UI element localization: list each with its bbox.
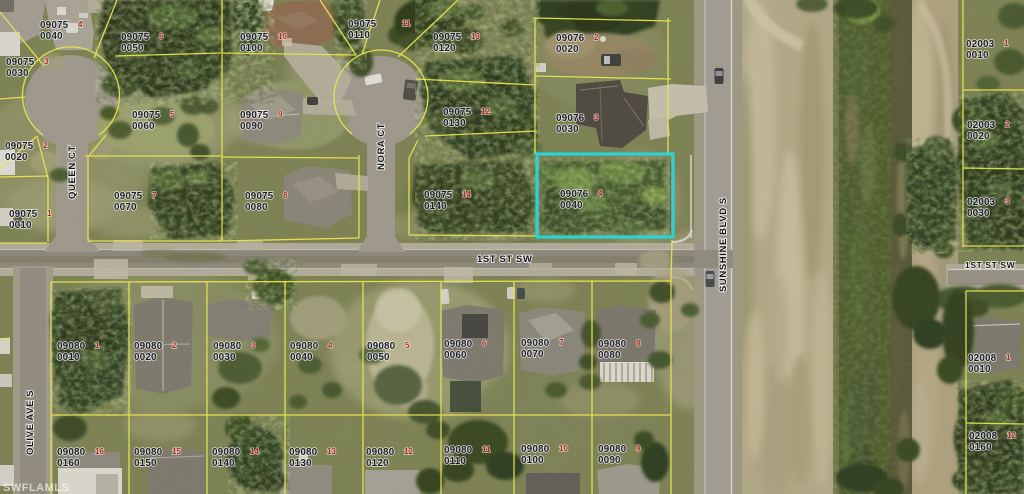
svg-text:02003: 02003	[967, 197, 996, 208]
svg-text:0100: 0100	[521, 455, 544, 466]
svg-text:0120: 0120	[366, 458, 389, 469]
svg-text:1: 1	[1006, 353, 1011, 362]
svg-text:1: 1	[1004, 39, 1009, 48]
svg-text:0140: 0140	[212, 458, 235, 469]
svg-text:09075: 09075	[40, 20, 69, 31]
svg-text:0140: 0140	[424, 201, 447, 212]
svg-text:10: 10	[559, 444, 568, 453]
svg-text:0050: 0050	[121, 43, 144, 54]
svg-text:09075: 09075	[240, 110, 269, 121]
svg-text:09080: 09080	[521, 444, 550, 455]
svg-text:0040: 0040	[560, 200, 583, 211]
svg-text:09080: 09080	[213, 341, 242, 352]
svg-text:8: 8	[283, 191, 288, 200]
svg-text:09075: 09075	[433, 32, 462, 43]
svg-text:09080: 09080	[598, 444, 627, 455]
svg-text:9: 9	[278, 110, 283, 119]
svg-text:12: 12	[404, 447, 413, 456]
svg-text:09075: 09075	[443, 107, 472, 118]
svg-text:09080: 09080	[212, 447, 241, 458]
svg-text:0030: 0030	[967, 208, 990, 219]
svg-text:0070: 0070	[114, 202, 137, 213]
svg-text:09075: 09075	[424, 190, 453, 201]
svg-text:12: 12	[481, 107, 490, 116]
svg-text:1: 1	[95, 341, 100, 350]
svg-text:11: 11	[402, 19, 411, 28]
svg-text:10: 10	[278, 32, 287, 41]
svg-text:3: 3	[44, 57, 49, 66]
svg-text:1ST ST SW: 1ST ST SW	[965, 260, 1016, 270]
svg-text:16: 16	[95, 447, 104, 456]
svg-text:02003: 02003	[966, 39, 995, 50]
svg-text:09075: 09075	[240, 32, 269, 43]
svg-text:5: 5	[405, 341, 410, 350]
svg-text:0060: 0060	[444, 350, 467, 361]
svg-text:09080: 09080	[367, 341, 396, 352]
svg-text:09075: 09075	[348, 19, 377, 30]
svg-text:0130: 0130	[289, 458, 312, 469]
svg-text:0020: 0020	[134, 352, 157, 363]
svg-text:09080: 09080	[366, 447, 395, 458]
svg-text:09080: 09080	[134, 447, 163, 458]
svg-text:0110: 0110	[444, 456, 466, 467]
svg-text:09080: 09080	[290, 341, 319, 352]
svg-text:0110: 0110	[348, 30, 370, 41]
svg-text:02003: 02003	[967, 120, 996, 131]
svg-text:0090: 0090	[240, 121, 263, 132]
svg-text:2: 2	[594, 33, 599, 42]
svg-text:QUEEN CT: QUEEN CT	[67, 145, 78, 199]
svg-text:2: 2	[43, 141, 48, 150]
svg-text:2: 2	[172, 341, 177, 350]
svg-text:09075: 09075	[6, 57, 35, 68]
svg-text:09075: 09075	[114, 191, 143, 202]
svg-text:0100: 0100	[240, 43, 263, 54]
svg-text:0030: 0030	[556, 124, 579, 135]
svg-text:0150: 0150	[134, 458, 157, 469]
svg-text:0030: 0030	[6, 68, 29, 79]
svg-text:SWFLAMLS: SWFLAMLS	[3, 482, 69, 494]
svg-text:0010: 0010	[9, 220, 32, 231]
svg-text:09080: 09080	[444, 339, 473, 350]
svg-text:0050: 0050	[367, 352, 390, 363]
svg-text:11: 11	[482, 445, 491, 454]
svg-text:09076: 09076	[556, 113, 585, 124]
svg-text:0010: 0010	[57, 352, 80, 363]
svg-text:0160: 0160	[57, 458, 80, 469]
svg-text:09080: 09080	[521, 338, 550, 349]
svg-text:4: 4	[598, 189, 603, 198]
svg-text:09075: 09075	[9, 209, 38, 220]
svg-text:0120: 0120	[433, 43, 456, 54]
svg-text:09075: 09075	[245, 191, 274, 202]
svg-text:1: 1	[47, 209, 52, 218]
svg-text:SUNSHINE BLVD S: SUNSHINE BLVD S	[718, 197, 729, 292]
svg-text:0080: 0080	[245, 202, 268, 213]
svg-text:1ST ST SW: 1ST ST SW	[477, 254, 533, 265]
svg-text:0020: 0020	[5, 152, 28, 163]
svg-text:09080: 09080	[289, 447, 318, 458]
svg-text:4: 4	[328, 341, 333, 350]
svg-text:5: 5	[170, 110, 175, 119]
svg-text:3: 3	[594, 113, 599, 122]
svg-text:0060: 0060	[132, 121, 155, 132]
svg-text:09075: 09075	[132, 110, 161, 121]
svg-text:OLIVE AVE S: OLIVE AVE S	[25, 390, 36, 455]
svg-text:NORA CT: NORA CT	[376, 123, 387, 170]
svg-text:0040: 0040	[40, 31, 63, 42]
svg-text:0020: 0020	[967, 131, 990, 142]
svg-text:3: 3	[251, 341, 256, 350]
svg-text:7: 7	[152, 191, 157, 200]
svg-text:09080: 09080	[598, 339, 627, 350]
svg-text:0130: 0130	[443, 118, 466, 129]
svg-text:13: 13	[327, 447, 336, 456]
svg-text:09080: 09080	[57, 341, 86, 352]
svg-text:15: 15	[172, 447, 181, 456]
svg-text:9: 9	[636, 444, 641, 453]
svg-text:0070: 0070	[521, 349, 544, 360]
svg-text:3: 3	[1005, 197, 1010, 206]
svg-text:8: 8	[636, 339, 641, 348]
svg-text:0080: 0080	[598, 350, 621, 361]
svg-text:0040: 0040	[290, 352, 313, 363]
svg-text:09075: 09075	[121, 32, 150, 43]
svg-text:4: 4	[78, 20, 83, 29]
svg-text:0010: 0010	[968, 364, 991, 375]
svg-text:02008: 02008	[969, 431, 998, 442]
svg-text:09075: 09075	[5, 141, 34, 152]
svg-text:6: 6	[482, 339, 487, 348]
svg-text:7: 7	[559, 338, 564, 347]
svg-text:6: 6	[159, 32, 164, 41]
svg-text:0010: 0010	[966, 50, 989, 61]
svg-text:09080: 09080	[57, 447, 86, 458]
svg-text:2: 2	[1005, 120, 1010, 129]
svg-text:09080: 09080	[134, 341, 163, 352]
svg-text:09080: 09080	[444, 445, 473, 456]
svg-text:0030: 0030	[213, 352, 236, 363]
svg-text:14: 14	[250, 447, 259, 456]
svg-text:0090: 0090	[598, 455, 621, 466]
svg-text:14: 14	[462, 190, 471, 199]
svg-text:09076: 09076	[556, 33, 585, 44]
svg-text:09076: 09076	[560, 189, 589, 200]
svg-text:0160: 0160	[969, 442, 992, 453]
svg-text:13: 13	[471, 32, 480, 41]
svg-text:12: 12	[1007, 431, 1016, 440]
svg-text:02008: 02008	[968, 353, 997, 364]
svg-text:0020: 0020	[556, 44, 579, 55]
